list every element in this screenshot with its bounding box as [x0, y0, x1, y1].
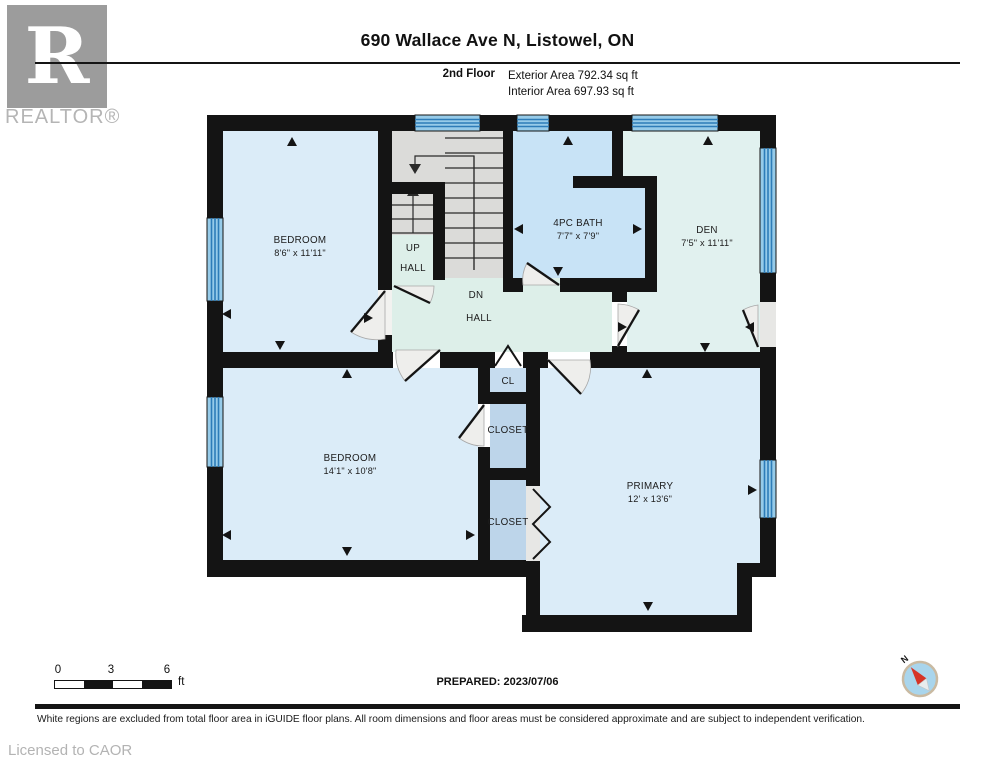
wall	[573, 176, 657, 188]
room-dims-bedroom-1: 8'6" x 11'11"	[274, 248, 326, 258]
room-dims-primary: 12' x 13'6"	[628, 494, 672, 504]
disclaimer-text: White regions are excluded from total fl…	[37, 714, 967, 725]
wall	[590, 352, 776, 368]
wall	[207, 560, 540, 577]
wall	[645, 188, 657, 278]
room-fills	[223, 131, 760, 615]
window-icon	[517, 115, 549, 131]
footer-divider	[35, 704, 960, 709]
window-icon	[207, 218, 223, 301]
compass-north-label: N	[899, 653, 910, 665]
wall	[612, 346, 627, 352]
wall	[503, 278, 523, 292]
scale-tick-3: 3	[105, 664, 117, 676]
wall	[522, 615, 752, 632]
license-text: Licensed to CAOR	[8, 742, 132, 759]
room-dims-den: 7'5" x 11'11"	[681, 238, 733, 248]
prepared-date: PREPARED: 2023/07/06	[0, 676, 995, 688]
wall	[378, 131, 392, 290]
room-label-bath: 4PC BATH	[553, 218, 603, 229]
wall	[207, 352, 393, 368]
interior-area: Interior Area 697.93 sq ft	[508, 84, 638, 100]
wall	[433, 182, 445, 280]
room-label-den: DEN	[696, 225, 718, 236]
label-dn-hall: HALL	[466, 313, 492, 324]
realtor-logo: R	[7, 5, 107, 108]
wall	[612, 131, 623, 176]
window-icon	[760, 148, 776, 273]
wall	[478, 468, 540, 480]
room-label-closet-upper: CLOSET	[488, 425, 529, 436]
scale-tick-0: 0	[52, 664, 64, 676]
door-opening	[760, 302, 776, 347]
window-icon	[415, 115, 480, 131]
room-bedroom-2	[223, 368, 478, 560]
window-icon	[207, 397, 223, 467]
wall	[207, 115, 223, 577]
scale-tick-6: 6	[161, 664, 173, 676]
wall	[478, 392, 540, 404]
room-label-cl: CL	[501, 376, 514, 387]
room-closet-upper	[490, 404, 526, 468]
room-label-closet-lower: CLOSET	[488, 517, 529, 528]
label-up-hall: HALL	[400, 263, 426, 274]
wall	[503, 131, 513, 278]
page-title: 690 Wallace Ave N, Listowel, ON	[0, 30, 995, 51]
wall	[526, 352, 540, 486]
exterior-area: Exterior Area 792.34 sq ft	[508, 68, 638, 84]
room-label-bedroom-2: BEDROOM	[324, 453, 377, 464]
room-label-primary: PRIMARY	[627, 481, 674, 492]
room-label-bedroom-1: BEDROOM	[274, 235, 327, 246]
wall	[737, 577, 752, 615]
wall	[737, 563, 773, 577]
wall	[612, 292, 627, 302]
compass-icon: N	[891, 643, 949, 705]
floor-label: 2nd Floor	[330, 68, 495, 80]
header-divider	[35, 62, 960, 64]
area-summary: Exterior Area 792.34 sq ft Interior Area…	[508, 68, 638, 100]
window-icon	[760, 460, 776, 518]
label-dn: DN	[469, 290, 484, 301]
floor-plan-page: R REALTOR® 690 Wallace Ave N, Listowel, …	[0, 0, 995, 768]
wall	[478, 447, 490, 577]
window-icon	[632, 115, 718, 131]
realtor-logo-text: REALTOR®	[5, 106, 120, 129]
floor-plan-drawing: BEDROOM 8'6" x 11'11" 4PC BATH 7'7" x 7'…	[0, 0, 995, 768]
label-up: UP	[406, 243, 420, 254]
room-dims-bedroom-2: 14'1" x 10'8"	[324, 466, 377, 476]
wall	[378, 182, 445, 194]
realtor-logo-r-icon: R	[25, 7, 90, 107]
wall	[560, 278, 657, 292]
room-dims-bath: 7'7" x 7'9"	[557, 231, 599, 241]
